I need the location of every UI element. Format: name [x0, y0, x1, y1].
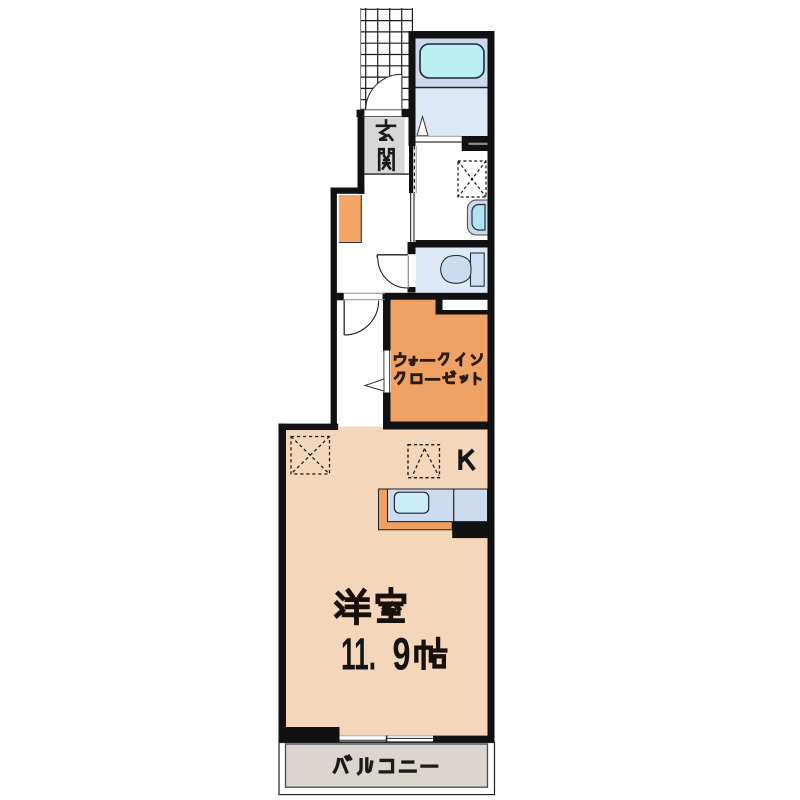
svg-text:9: 9 — [393, 629, 411, 680]
svg-text:11.: 11. — [341, 629, 376, 680]
